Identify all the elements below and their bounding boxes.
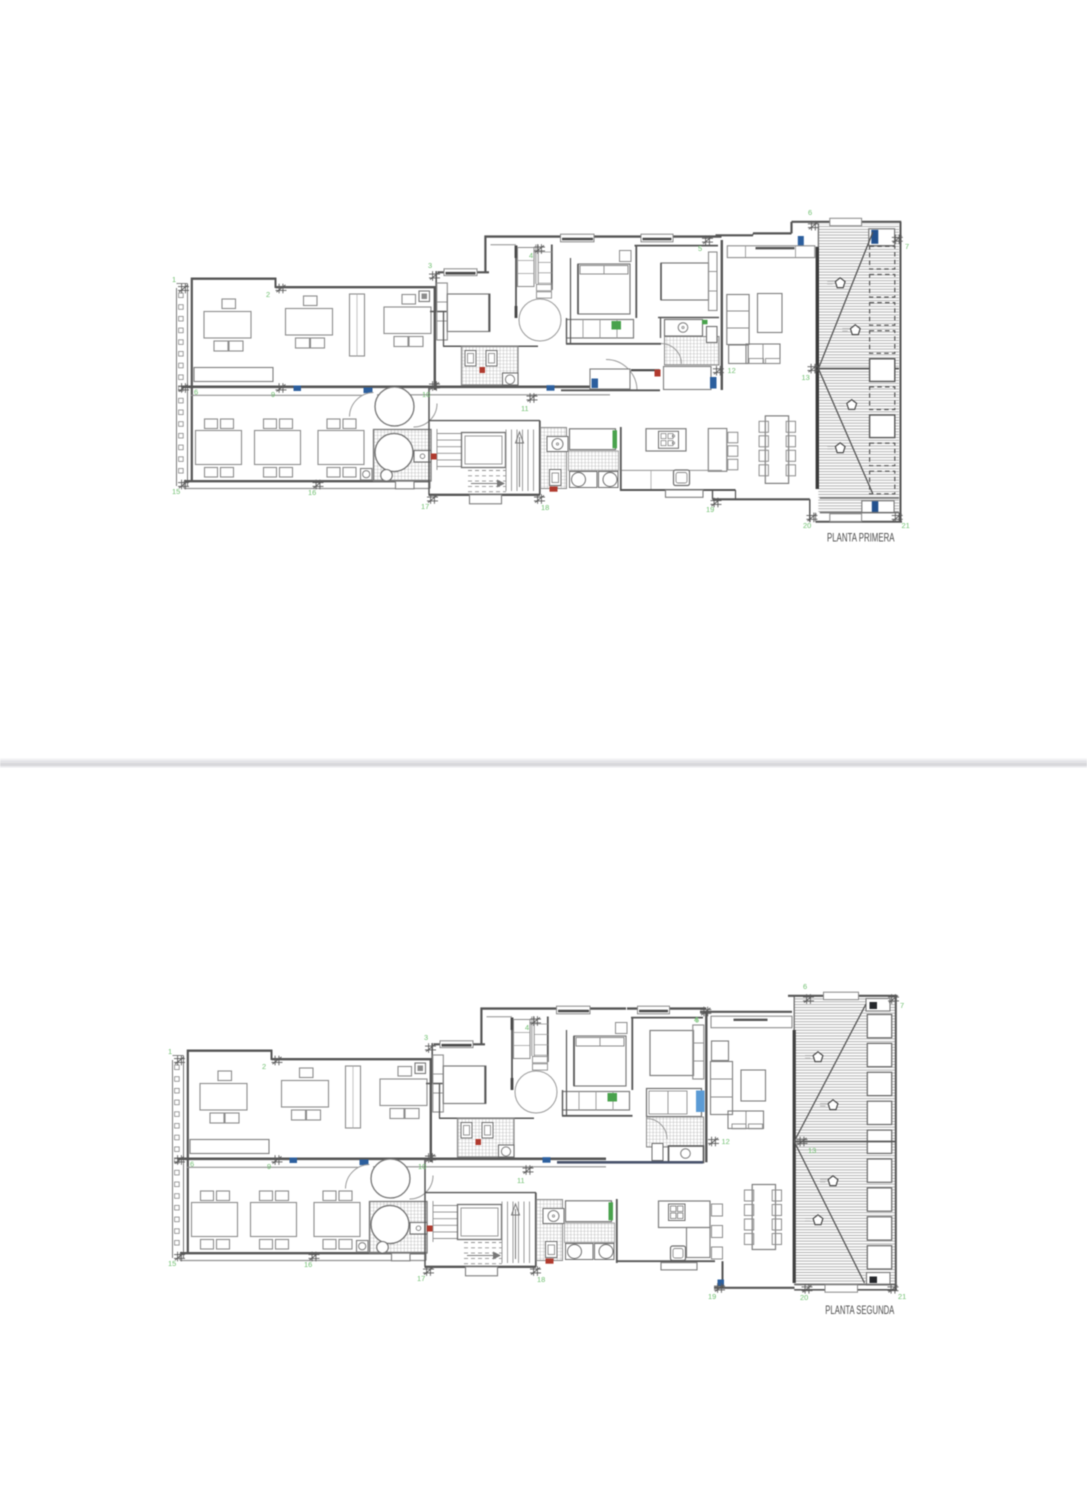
svg-text:15: 15 — [172, 487, 180, 496]
svg-text:9: 9 — [267, 1162, 271, 1171]
svg-text:15: 15 — [168, 1259, 176, 1268]
svg-text:3: 3 — [424, 1033, 428, 1042]
svg-text:12: 12 — [722, 1137, 730, 1146]
svg-text:21: 21 — [902, 521, 910, 530]
svg-text:16: 16 — [304, 1260, 312, 1269]
svg-text:6: 6 — [808, 208, 812, 217]
svg-text:18: 18 — [537, 1275, 545, 1284]
svg-text:12: 12 — [728, 366, 736, 375]
svg-text:19: 19 — [708, 1292, 716, 1301]
svg-text:7: 7 — [900, 1001, 904, 1010]
svg-text:5: 5 — [698, 244, 702, 253]
svg-text:11: 11 — [517, 1176, 525, 1185]
svg-text:5: 5 — [695, 1016, 699, 1025]
svg-text:1: 1 — [172, 275, 176, 284]
svg-text:6: 6 — [190, 1160, 194, 1169]
svg-text:PLANTA PRIMERA: PLANTA PRIMERA — [827, 533, 895, 545]
svg-text:7: 7 — [905, 242, 909, 251]
svg-text:17: 17 — [417, 1274, 425, 1283]
svg-text:11: 11 — [521, 404, 529, 413]
svg-text:20: 20 — [803, 521, 811, 530]
svg-text:20: 20 — [800, 1293, 808, 1302]
svg-text:18: 18 — [541, 503, 549, 512]
svg-text:10: 10 — [418, 1162, 426, 1171]
svg-text:1: 1 — [168, 1047, 172, 1056]
svg-text:6: 6 — [194, 388, 198, 397]
svg-text:2: 2 — [266, 290, 270, 299]
svg-text:4: 4 — [529, 251, 533, 260]
svg-text:PLANTA SEGUNDA: PLANTA SEGUNDA — [825, 1305, 894, 1317]
svg-text:19: 19 — [706, 505, 714, 514]
svg-text:9: 9 — [271, 390, 275, 399]
svg-text:17: 17 — [421, 502, 429, 511]
svg-text:2: 2 — [262, 1062, 266, 1071]
svg-text:6: 6 — [803, 982, 807, 991]
svg-text:13: 13 — [802, 373, 810, 382]
svg-text:3: 3 — [428, 261, 432, 270]
svg-text:10: 10 — [422, 390, 430, 399]
svg-text:13: 13 — [808, 1146, 816, 1155]
svg-text:4: 4 — [525, 1023, 529, 1032]
svg-text:16: 16 — [308, 488, 316, 497]
svg-text:21: 21 — [898, 1292, 906, 1301]
